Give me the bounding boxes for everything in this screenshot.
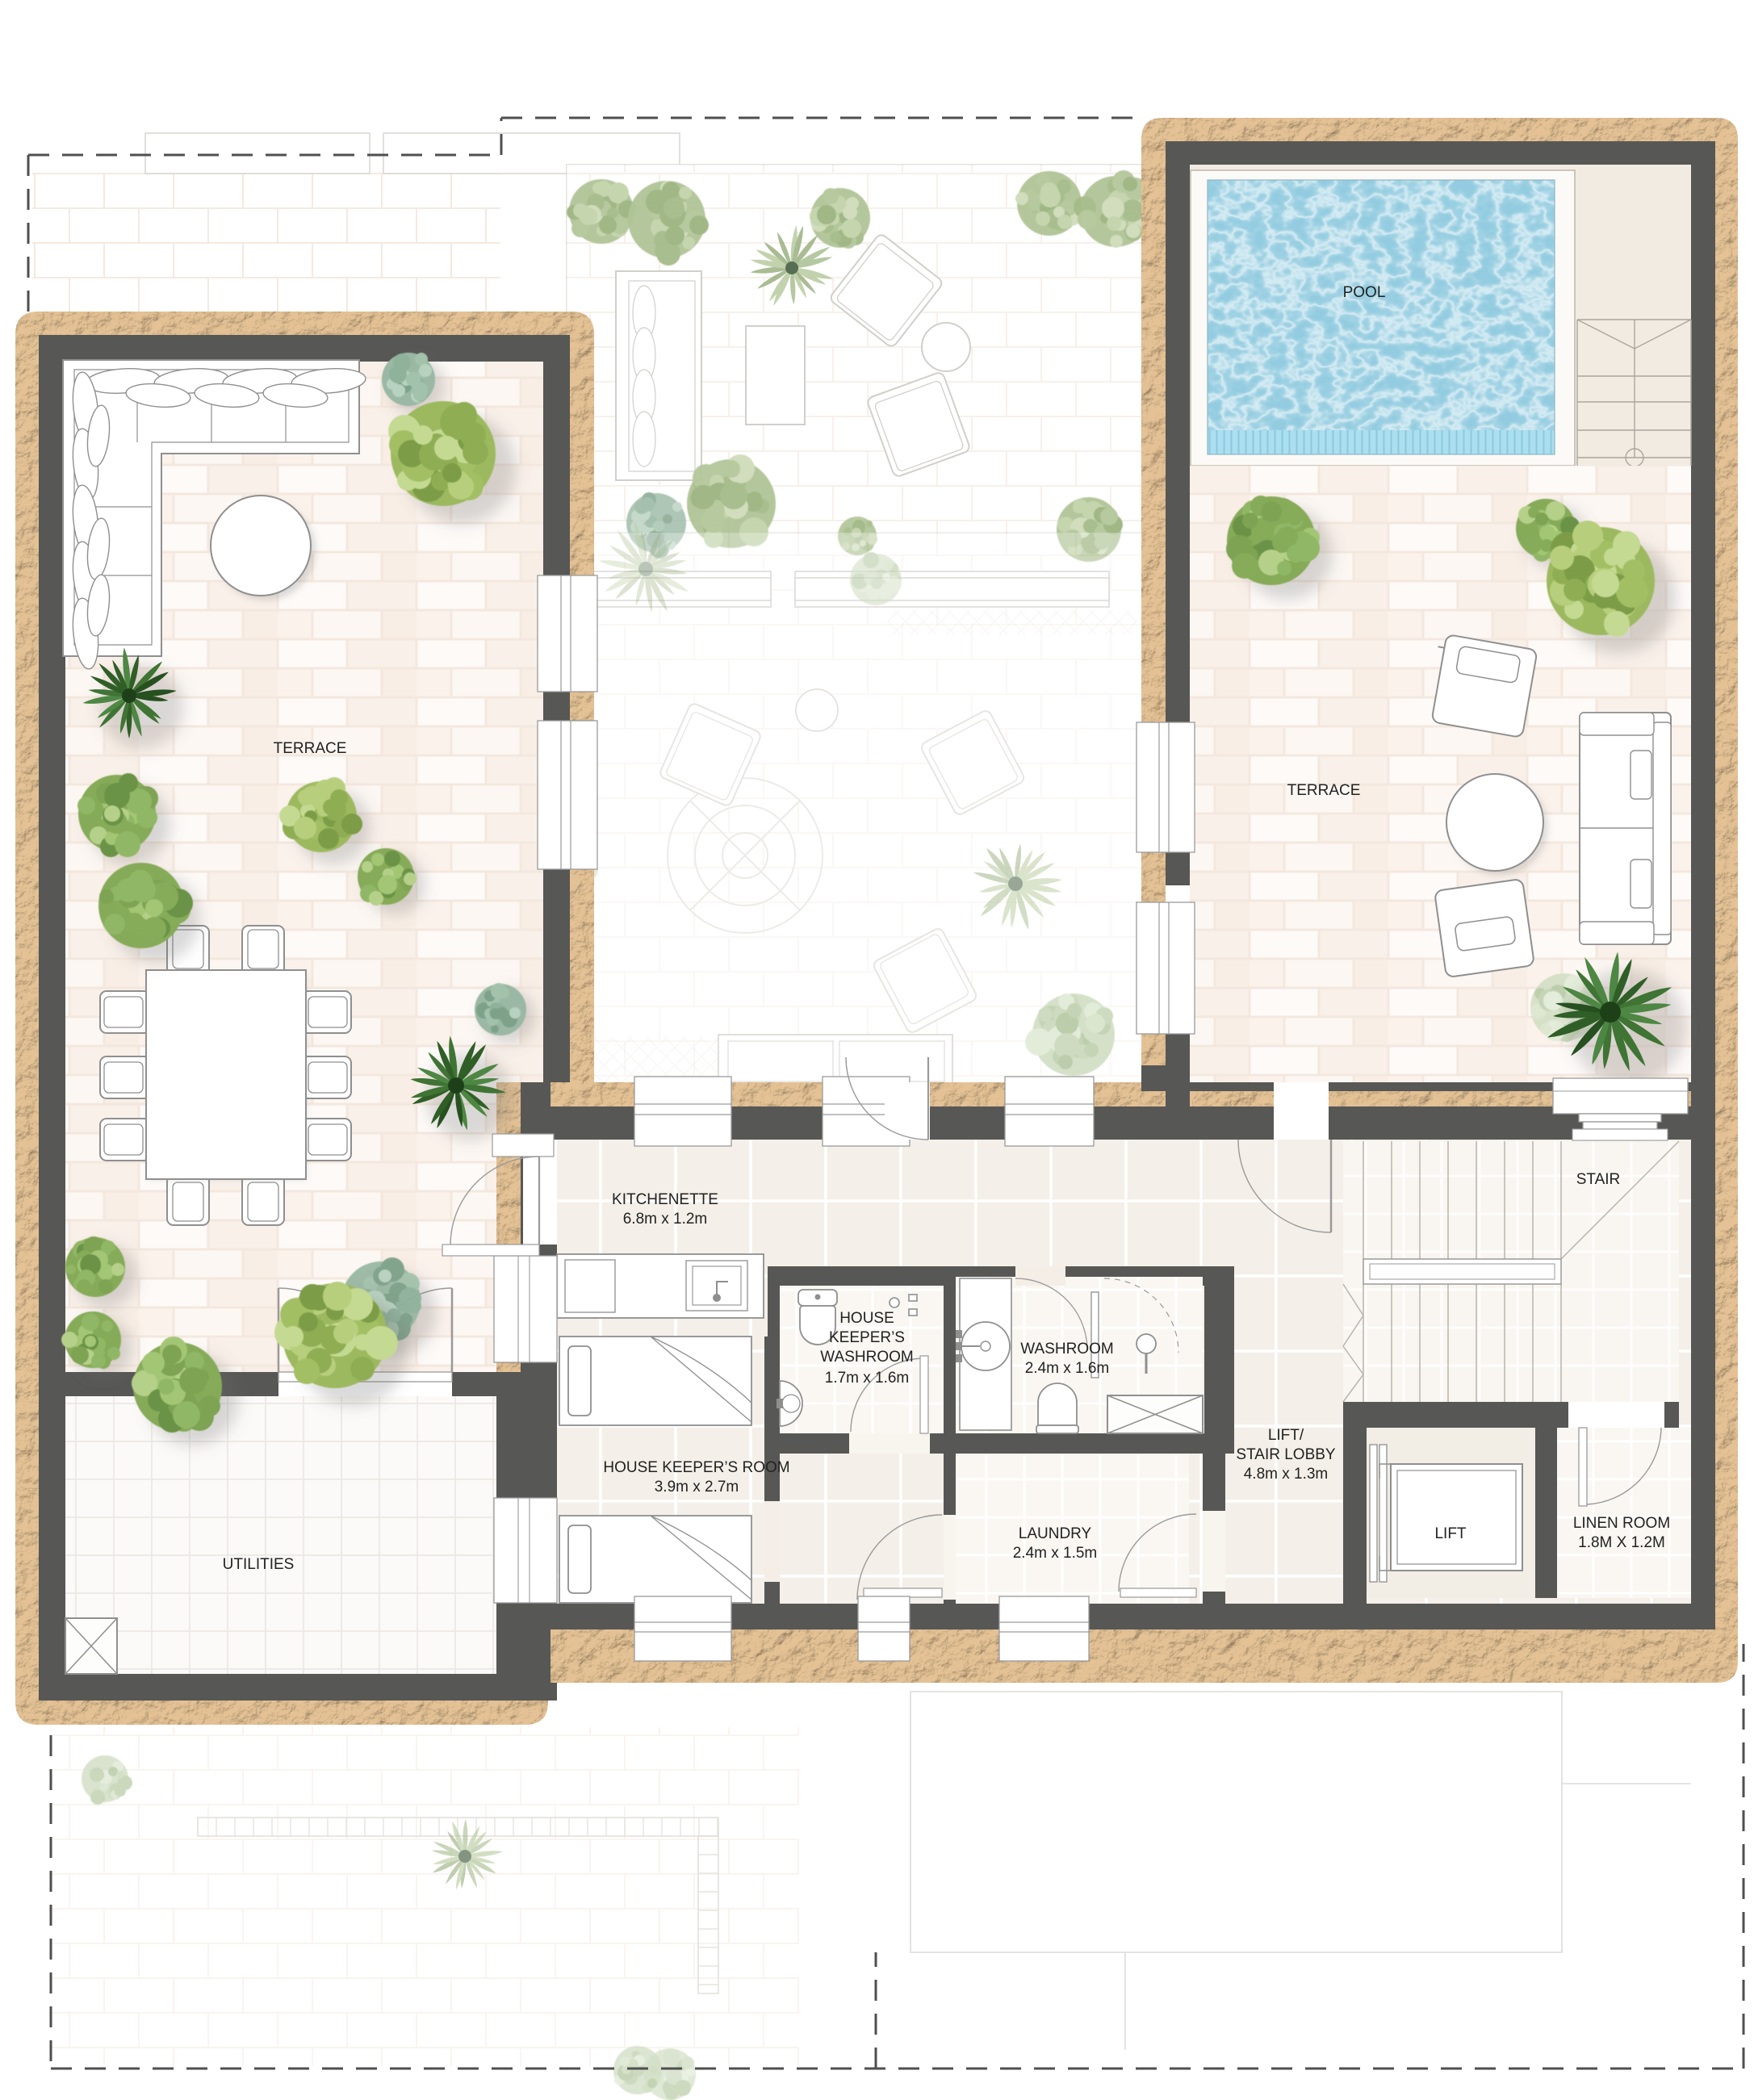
- svg-text:STAIR LOBBY: STAIR LOBBY: [1236, 1446, 1336, 1463]
- svg-text:LAUNDRY: LAUNDRY: [1019, 1525, 1092, 1542]
- svg-text:6.8m x 1.2m: 6.8m x 1.2m: [623, 1211, 708, 1228]
- svg-text:HOUSE: HOUSE: [839, 1310, 894, 1327]
- svg-text:WASHROOM: WASHROOM: [1020, 1341, 1113, 1357]
- svg-text:TERRACE: TERRACE: [274, 740, 347, 757]
- svg-text:1.8M X 1.2M: 1.8M X 1.2M: [1578, 1534, 1665, 1551]
- svg-text:LIFT: LIFT: [1434, 1525, 1466, 1542]
- svg-text:2.4m x 1.5m: 2.4m x 1.5m: [1013, 1545, 1098, 1562]
- svg-text:LIFT/: LIFT/: [1268, 1427, 1304, 1444]
- svg-text:TERRACE: TERRACE: [1287, 782, 1361, 799]
- svg-text:HOUSE KEEPER’S ROOM: HOUSE KEEPER’S ROOM: [603, 1459, 789, 1476]
- svg-text:1.7m x 1.6m: 1.7m x 1.6m: [825, 1370, 910, 1387]
- svg-text:KEEPER’S: KEEPER’S: [829, 1329, 905, 1346]
- svg-text:UTILITIES: UTILITIES: [223, 1556, 295, 1573]
- svg-text:KITCHENETTE: KITCHENETTE: [612, 1191, 718, 1208]
- svg-text:LINEN ROOM: LINEN ROOM: [1573, 1515, 1670, 1532]
- svg-text:2.4m x 1.6m: 2.4m x 1.6m: [1025, 1360, 1110, 1377]
- svg-text:WASHROOM: WASHROOM: [820, 1349, 913, 1366]
- svg-text:POOL: POOL: [1343, 284, 1386, 301]
- svg-text:3.9m x 2.7m: 3.9m x 2.7m: [655, 1479, 739, 1496]
- svg-text:4.8m x 1.3m: 4.8m x 1.3m: [1244, 1466, 1329, 1483]
- svg-text:STAIR: STAIR: [1576, 1171, 1621, 1188]
